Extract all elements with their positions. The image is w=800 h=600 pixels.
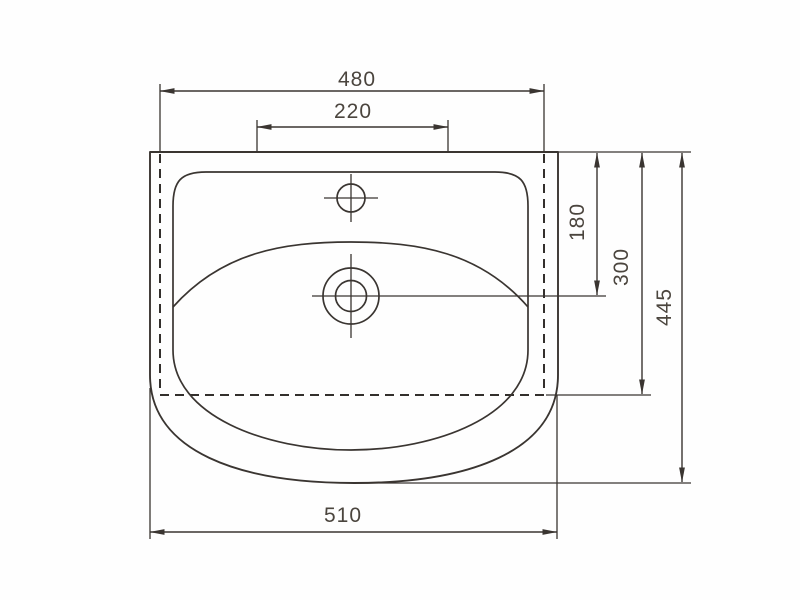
dimension-220: 220 xyxy=(257,100,448,152)
dimension-300: 300 xyxy=(610,153,642,394)
sink-outer-outline xyxy=(150,152,558,483)
dimension-445: 445 xyxy=(653,153,682,482)
drain xyxy=(312,254,606,338)
dim-label-300: 300 xyxy=(610,248,633,286)
dimension-180: 180 xyxy=(566,153,597,295)
dim-label-445: 445 xyxy=(653,288,676,326)
drawing-page: 480 220 180 300 445 510 xyxy=(0,0,800,600)
dim-label-220: 220 xyxy=(334,100,372,123)
dim-label-510: 510 xyxy=(324,504,362,527)
faucet-hole xyxy=(324,174,378,222)
technical-drawing-canvas: 480 220 180 300 445 510 xyxy=(0,0,800,600)
dimension-510: 510 xyxy=(150,388,557,539)
dim-label-480: 480 xyxy=(338,68,376,91)
mount-dashed-outline xyxy=(160,154,546,395)
dim-label-180: 180 xyxy=(566,203,589,241)
